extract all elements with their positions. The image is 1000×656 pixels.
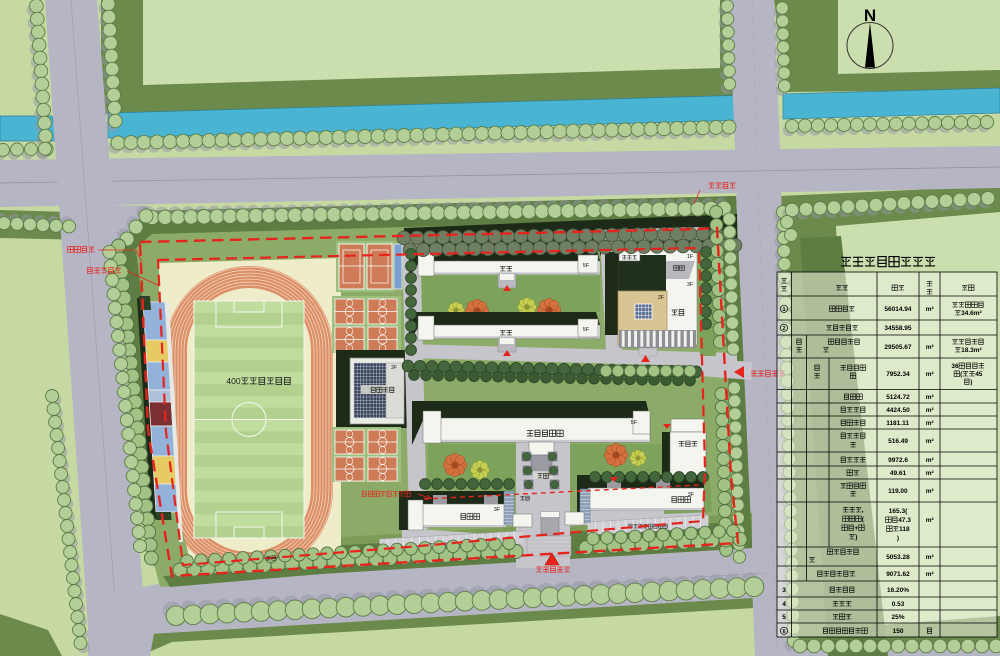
svg-text:5: 5 <box>782 614 786 621</box>
svg-text:3: 3 <box>782 587 786 594</box>
svg-text:m²: m² <box>926 517 935 524</box>
svg-text:5F: 5F <box>583 263 590 269</box>
svg-text:4424.50: 4424.50 <box>886 407 910 414</box>
svg-text:34558.95: 34558.95 <box>884 325 911 332</box>
svg-text:34.6m²: 34.6m² <box>961 310 982 317</box>
svg-text:5F: 5F <box>583 327 590 333</box>
svg-text:m²: m² <box>926 488 935 495</box>
svg-text:3F: 3F <box>494 507 501 513</box>
svg-text:56014.94: 56014.94 <box>884 306 911 313</box>
svg-text:7952.34: 7952.34 <box>886 371 910 378</box>
svg-text:m²: m² <box>926 571 935 578</box>
svg-text:18.3m²: 18.3m² <box>961 347 982 354</box>
svg-text:): ) <box>970 379 972 386</box>
svg-text:3F: 3F <box>688 492 695 498</box>
svg-text:m²: m² <box>926 371 935 378</box>
svg-text:1181.11: 1181.11 <box>886 420 909 427</box>
svg-text:6: 6 <box>783 629 786 635</box>
svg-text:m²: m² <box>926 306 935 313</box>
svg-text:m²: m² <box>926 344 935 351</box>
svg-text:m²: m² <box>926 394 935 401</box>
svg-text:29505.67: 29505.67 <box>884 344 911 351</box>
svg-text:165.3(: 165.3( <box>889 508 908 515</box>
svg-text:): ) <box>855 534 857 541</box>
svg-text:118: 118 <box>899 526 910 533</box>
svg-text:49.61: 49.61 <box>890 470 907 477</box>
svg-text:516.49: 516.49 <box>888 438 908 445</box>
svg-text:400: 400 <box>226 376 240 386</box>
svg-text:9071.62: 9071.62 <box>886 571 910 578</box>
svg-text:36: 36 <box>951 363 959 370</box>
svg-text:m²: m² <box>926 554 935 561</box>
svg-text:5053.28: 5053.28 <box>886 554 910 561</box>
svg-text:0.53: 0.53 <box>892 601 905 608</box>
svg-text:5F: 5F <box>631 420 638 426</box>
svg-text:25%: 25% <box>892 614 905 621</box>
svg-text:150: 150 <box>893 628 904 635</box>
svg-text:m²: m² <box>926 438 935 445</box>
svg-text:,: , <box>862 507 864 514</box>
svg-text:47.3: 47.3 <box>898 517 911 524</box>
svg-text:1F: 1F <box>687 254 693 260</box>
svg-text:16.20%: 16.20% <box>887 587 909 594</box>
svg-text:45: 45 <box>975 371 983 378</box>
svg-text:119.00: 119.00 <box>888 488 908 495</box>
svg-text:4: 4 <box>782 601 786 608</box>
svg-text:2: 2 <box>783 326 786 332</box>
svg-text:9972.6: 9972.6 <box>888 457 908 464</box>
svg-text:m²: m² <box>926 457 935 464</box>
svg-text:m²: m² <box>926 420 935 427</box>
svg-text:5124.72: 5124.72 <box>886 394 910 401</box>
svg-text:3F: 3F <box>687 282 693 288</box>
svg-text:m²: m² <box>926 470 935 477</box>
svg-text:2F: 2F <box>391 365 397 371</box>
svg-text:): ) <box>897 535 899 542</box>
svg-text:2F: 2F <box>658 295 664 301</box>
svg-text:m²: m² <box>926 407 935 414</box>
svg-text:+: + <box>854 525 858 532</box>
svg-text:1: 1 <box>783 307 786 313</box>
